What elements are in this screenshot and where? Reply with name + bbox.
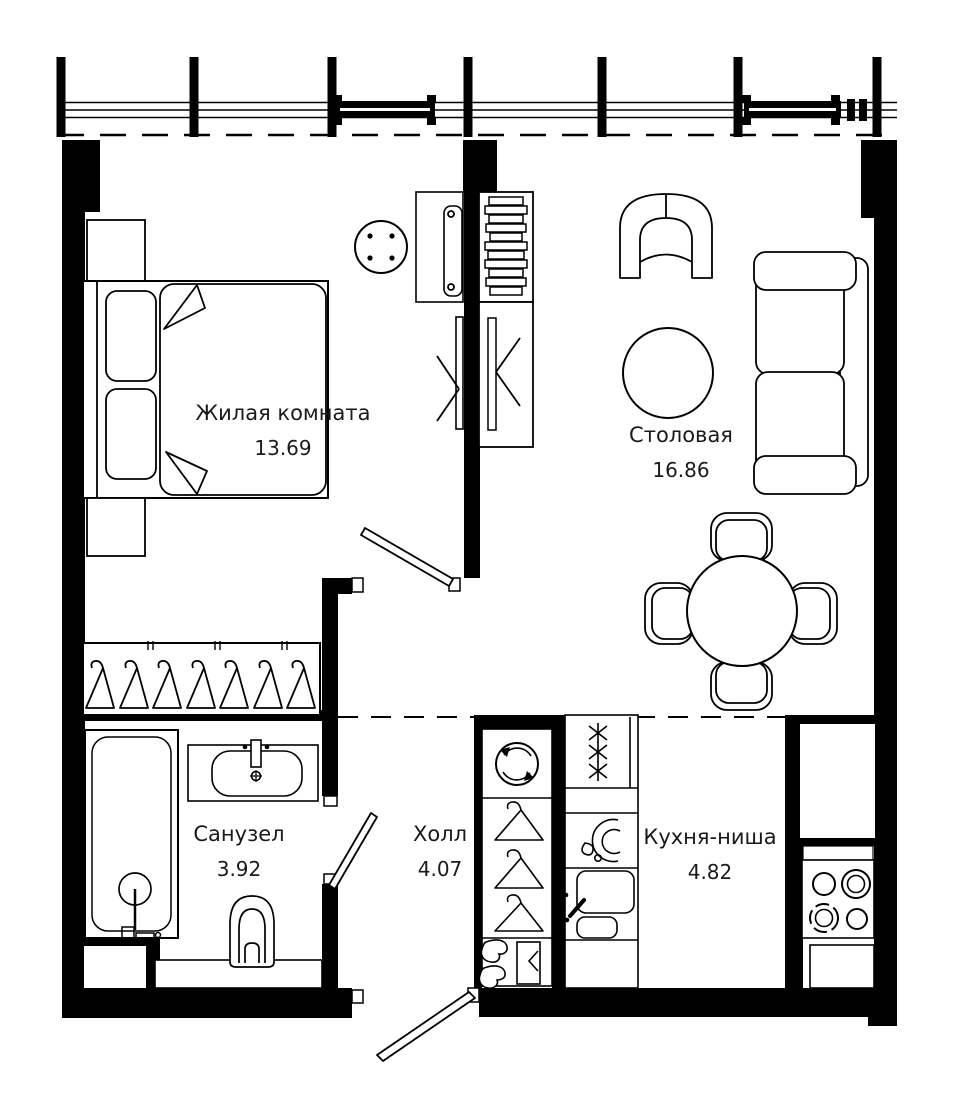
- nightstand-top: [87, 220, 145, 282]
- dining-chair: [711, 513, 772, 561]
- hanger-rail: [83, 641, 320, 715]
- room-name: Санузел: [193, 817, 284, 852]
- dining-chair: [645, 583, 693, 644]
- room-area: 13.69: [196, 431, 371, 466]
- room-name: Жилая комната: [196, 396, 371, 431]
- window-frame-b: [742, 95, 867, 125]
- dining-chair: [711, 662, 772, 710]
- kitchen-cabinet: [810, 945, 874, 988]
- hall-closet: [479, 729, 552, 988]
- duct-window: [84, 946, 146, 988]
- bathroom-door: [329, 813, 377, 889]
- shelf-unit: [479, 192, 533, 302]
- rug: [623, 328, 713, 418]
- glazed-facade: [57, 57, 898, 137]
- pillow: [106, 291, 156, 381]
- room-name: Кухня-ниша: [643, 820, 776, 855]
- pillow: [106, 389, 156, 479]
- room-label-kitchen: Кухня-ниша 4.82: [643, 820, 776, 890]
- room-label-bathroom: Санузел 3.92: [193, 817, 284, 887]
- room-area: 4.82: [643, 855, 776, 890]
- stove-area: [802, 846, 874, 988]
- room-name: Холл: [413, 817, 467, 852]
- entrance-door: [377, 992, 475, 1061]
- sofa-armrest: [754, 456, 856, 494]
- nightstand-bottom: [87, 498, 145, 556]
- facade-mullions: [57, 57, 882, 137]
- dining-set: [645, 513, 837, 710]
- armchair: [620, 194, 712, 278]
- side-table: [355, 221, 407, 273]
- tv-panel: [437, 317, 463, 429]
- room-name: Столовая: [629, 418, 733, 453]
- desk-chair: [444, 206, 462, 296]
- bathtub: [85, 730, 178, 938]
- window-frame-a: [333, 95, 436, 125]
- room-label-hall: Холл 4.07: [413, 817, 467, 887]
- toilet: [230, 896, 274, 967]
- floor-plan: Жилая комната 13.69 Столовая 16.86 Сануз…: [0, 0, 958, 1120]
- room-area: 4.07: [413, 852, 467, 887]
- desk: [416, 192, 463, 302]
- ventilation-shaft: [800, 724, 875, 838]
- kitchen-units: [564, 715, 638, 988]
- room-label-living: Жилая комната 13.69: [196, 396, 371, 466]
- doors: [329, 528, 475, 1061]
- wash-basin: [188, 740, 318, 801]
- wardrobe: [479, 302, 533, 447]
- floor-plan-drawing: [0, 0, 958, 1120]
- living-room-door: [361, 528, 453, 586]
- room-area: 16.86: [629, 453, 733, 488]
- sofa-armrest: [754, 252, 856, 290]
- room-label-dining: Столовая 16.86: [629, 418, 733, 488]
- room-area: 3.92: [193, 852, 284, 887]
- sofa: [754, 252, 868, 494]
- door-jambs: [324, 578, 479, 1003]
- dining-table: [687, 556, 797, 666]
